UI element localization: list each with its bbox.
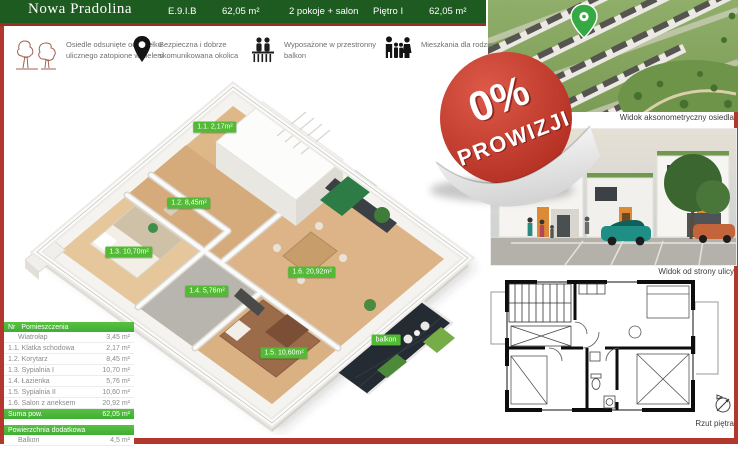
street-caption: Widok od strony ulicy xyxy=(488,267,734,276)
room-area: 10,70 m² xyxy=(102,367,130,374)
table-header: Nr Pomieszczenia xyxy=(4,322,134,332)
feature-balcony: Wyposażone w przestronny balkon xyxy=(250,36,388,68)
trees-icon xyxy=(14,36,58,77)
table-row: 1.1. Klatka schodowa2,17 m² xyxy=(4,343,134,354)
project-title: Nowa Pradolina xyxy=(28,1,132,18)
table-row: Wiatrołap3,45 m² xyxy=(4,332,134,343)
plan-caption: Rzut piętra xyxy=(640,419,734,428)
floor-plan-2d xyxy=(487,278,722,418)
room-area: 3,45 m² xyxy=(106,334,130,341)
room-name: 1.2. Korytarz xyxy=(8,356,48,363)
unit-area-right: 62,05 m² xyxy=(429,6,467,17)
compass-icon xyxy=(710,390,736,416)
rooms-table-rows: Wiatrołap3,45 m²1.1. Klatka schodowa2,17… xyxy=(4,332,134,409)
room-area: 5,76 m² xyxy=(106,378,130,385)
rooms-table: Nr Pomieszczenia Wiatrołap3,45 m²1.1. Kl… xyxy=(4,322,134,446)
family-icon xyxy=(383,36,413,64)
room-name: 1.5. Sypialnia II xyxy=(8,389,56,396)
room-area: 8,45 m² xyxy=(106,356,130,363)
table-row: 1.5. Sypialnia II10,60 m² xyxy=(4,387,134,398)
unit-code: E.9.I.B xyxy=(168,6,197,17)
table-row: 1.3. Sypialnia I10,70 m² xyxy=(4,365,134,376)
total-label: Suma pow. xyxy=(8,411,43,418)
table-row: 1.2. Korytarz8,45 m² xyxy=(4,354,134,365)
table-row: 1.6. Salon z aneksem20,92 m² xyxy=(4,398,134,409)
unit-floor: Piętro I xyxy=(373,6,403,17)
room-name: 1.3. Sypialnia I xyxy=(8,367,54,374)
table-header-name: Pomieszczenia xyxy=(21,324,68,331)
room-name: Balkon xyxy=(8,437,39,444)
room-name: 1.1. Klatka schodowa xyxy=(8,345,75,352)
header-underline xyxy=(0,23,486,26)
room-area: 10,60 m² xyxy=(102,389,130,396)
zero-commission-badge: 0% 0% PROWIZJI PROWIZJI xyxy=(410,40,610,215)
room-area: 4,5 m² xyxy=(110,437,130,444)
unit-layout: 2 pokoje + salon xyxy=(289,6,358,17)
room-area: 2,17 m² xyxy=(106,345,130,352)
location-pin-icon xyxy=(133,36,151,68)
table-total-row: Suma pow. 62,05 m² xyxy=(4,409,134,419)
feature-text: Wyposażone w przestronny balkon xyxy=(284,36,388,62)
table-row: 1.4. Łazienka5,76 m² xyxy=(4,376,134,387)
unit-area: 62,05 m² xyxy=(222,6,260,17)
total-value: 62,05 m² xyxy=(102,411,130,418)
balcony-icon xyxy=(250,36,276,68)
rooms-table-extra-rows: Balkon4,5 m² xyxy=(4,435,134,446)
table-row: Balkon4,5 m² xyxy=(4,435,134,446)
table-header-nr: Nr xyxy=(8,324,15,331)
extra-area-header: Powierzchnia dodatkowa xyxy=(4,425,134,435)
room-name: 1.6. Salon z aneksem xyxy=(8,400,75,407)
room-area: 20,92 m² xyxy=(102,400,130,407)
header-bar: Nowa Pradolina E.9.I.B 62,05 m² 2 pokoje… xyxy=(0,0,486,23)
room-name: Wiatrołap xyxy=(8,334,48,341)
room-name: 1.4. Łazienka xyxy=(8,378,50,385)
